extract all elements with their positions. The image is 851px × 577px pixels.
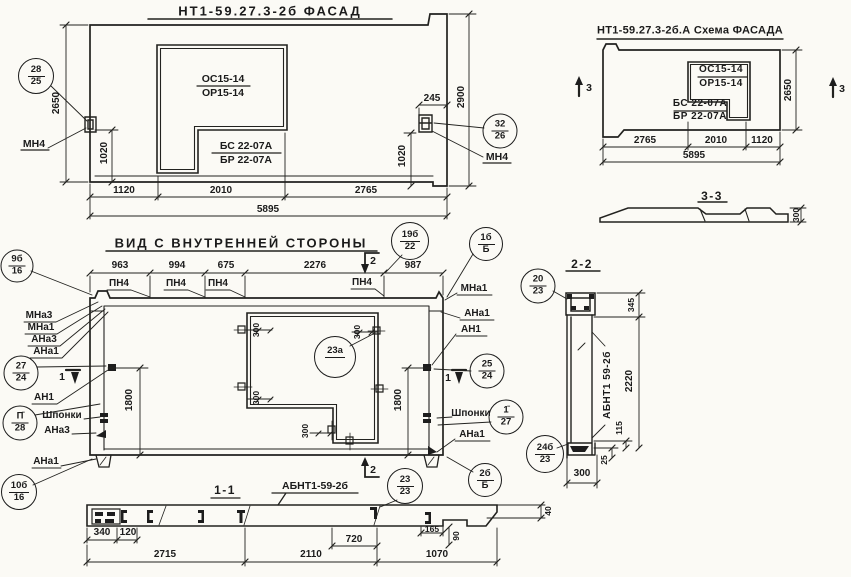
inner-label-mna3: МНа3 <box>26 311 53 321</box>
callout-den: 16 <box>12 493 27 504</box>
callout-den: Б <box>480 481 491 492</box>
section11-dim-340: 340 <box>94 528 111 538</box>
inner-callout-9b-16: 9б 16 <box>1 250 34 283</box>
inner-dim-300-tr: 300 <box>353 325 362 339</box>
inner-dim-994: 994 <box>169 261 186 271</box>
callout-num: 28 <box>28 65 45 77</box>
section33-dim-300: 300 <box>792 208 801 222</box>
schema-dim-1120: 1120 <box>751 136 773 146</box>
inner-callout-25-24: 25 24 <box>470 354 505 389</box>
inner-label-ana3-lower: АНа3 <box>44 426 70 436</box>
inner-dimension-lines <box>87 251 446 458</box>
callout-num: 23а <box>325 346 345 358</box>
inner-label-ana1-right-bot: АНа1 <box>459 430 485 440</box>
callout-den <box>333 358 337 368</box>
section22-dim-300: 300 <box>574 469 591 479</box>
callout-num: 10б <box>9 481 29 493</box>
facade-anchor-label-right: МН4 <box>486 152 508 163</box>
callout-den: 23 <box>531 287 546 298</box>
section11-dim-40: 40 <box>544 506 553 515</box>
inner-label-ana1-right-top: АНа1 <box>464 309 490 319</box>
inner-callout-p-28: П̄ 28 <box>3 406 38 441</box>
facade-dim-2900: 2900 <box>457 86 467 108</box>
inner-pn4-2: ПН4 <box>166 279 186 289</box>
inner-dim-1800-right: 1800 <box>394 389 404 411</box>
section11-dim-165: 165 <box>425 525 439 534</box>
facade-dim-1020-left: 1020 <box>100 142 110 164</box>
inner-marker-1-left: 1 <box>59 372 65 383</box>
schema-dim-2650: 2650 <box>784 79 794 101</box>
inner-title: ВИД С ВНУТРЕННЕЙ СТОРОНЫ <box>115 237 368 250</box>
facade-dim-2010: 2010 <box>210 186 232 196</box>
section11-callout-23-23: 23 23 <box>387 468 423 504</box>
inner-callout-1-27: 1̄ 27 <box>489 400 524 435</box>
inner-dim-300-tl: 300 <box>252 323 261 337</box>
inner-callout-27-24: 27 24 <box>4 356 39 391</box>
schema-panel-mark-bot: БР 22-07А <box>673 112 727 122</box>
inner-label-ana1: АНа1 <box>33 347 59 357</box>
section22-dim-115: 115 <box>615 421 624 435</box>
inner-dim-675: 675 <box>218 261 235 271</box>
schema-opening-mark-bot: ОР15-14 <box>699 79 743 89</box>
callout-num: 24б <box>535 443 555 455</box>
schema-opening-mark-top: ОС15-14 <box>699 65 743 75</box>
inner-label-an1-left: АН1 <box>34 393 54 403</box>
facade-title: НТ1-59.27.3-2б ФАСАД <box>178 5 362 18</box>
inner-panel-outline <box>90 291 443 467</box>
schema-section-marker-right: 3 <box>839 84 845 95</box>
callout-den: 16 <box>10 267 25 278</box>
inner-dim-1800-left: 1800 <box>125 389 135 411</box>
section11-dim-120: 120 <box>120 528 137 538</box>
inner-dim-2276: 2276 <box>304 261 326 271</box>
facade-dim-2650: 2650 <box>52 92 62 114</box>
schema-panel-outline <box>603 44 780 137</box>
inner-label-mna1: МНа1 <box>28 323 55 333</box>
callout-den: 27 <box>499 418 514 429</box>
callout-den: 24 <box>14 374 29 385</box>
section22-profile <box>566 293 605 458</box>
inner-marker-1-right: 1 <box>445 373 451 384</box>
inner-label-shponki-right: Шпонки <box>451 409 490 419</box>
inner-callout-1b-b: 1б Б <box>469 227 503 261</box>
callout-den: 28 <box>13 424 28 435</box>
inner-edge-details <box>96 364 437 455</box>
inner-dim-300-bot: 300 <box>301 424 310 438</box>
section11-dim-2110: 2110 <box>300 550 322 560</box>
section33-title: 3-3 <box>701 190 723 202</box>
section22-callout-top: 20 23 <box>521 269 556 304</box>
facade-callout-left: 28 25 <box>18 58 54 94</box>
section11-title: 1-1 <box>214 484 236 496</box>
facade-callout-right: 32 26 <box>483 114 518 149</box>
schema-dim-2765: 2765 <box>634 136 656 146</box>
facade-anchor-label-left: МН4 <box>23 139 45 150</box>
callout-den: 25 <box>29 77 44 88</box>
section11-dim-1070: 1070 <box>426 550 448 560</box>
schema-dim-5895: 5895 <box>683 151 705 161</box>
facade-dim-245: 245 <box>424 94 441 104</box>
section11-dim-2715: 2715 <box>154 550 176 560</box>
callout-den: 26 <box>493 132 508 143</box>
inner-marker-2-bottom: 2 <box>370 465 376 476</box>
section22-title: 2-2 <box>571 258 593 270</box>
section22-callout-bottom: 24б 23 <box>526 435 564 473</box>
section11-callout-2b-b: 2б Б <box>468 463 502 497</box>
schema-panel-mark-top: БС 22-07А <box>673 99 727 109</box>
inner-label-mna1-right: МНа1 <box>461 284 488 294</box>
inner-callout-23a: 23а <box>314 336 356 378</box>
section22-dim-2220: 2220 <box>625 370 635 392</box>
section22-dim-345: 345 <box>627 298 636 312</box>
callout-num: 2б <box>477 469 494 481</box>
callout-den: 23 <box>398 487 413 498</box>
section33-profile <box>600 202 806 225</box>
inner-callout-10b-16: 10б 16 <box>1 474 37 510</box>
callout-den: 22 <box>403 242 418 253</box>
section11-beam-label: АБНТ1-59-2б <box>282 481 348 492</box>
inner-dim-987: 987 <box>405 261 422 271</box>
facade-opening-mark-bot: ОР15-14 <box>202 88 244 99</box>
inner-pn4-1: ПН4 <box>109 279 129 289</box>
inner-label-ana1-bottom: АНа1 <box>33 457 59 467</box>
section22-beam-label: АБНТ1 59-2б <box>603 351 613 419</box>
callout-num: 1б <box>478 233 495 245</box>
callout-num: 19б <box>400 230 420 242</box>
facade-panel-mark-bot: БР 22-07А <box>220 155 272 166</box>
inner-dim-963: 963 <box>112 261 129 271</box>
callout-den: 23 <box>538 455 553 466</box>
section11-dim-720: 720 <box>346 535 363 545</box>
facade-panel-mark-top: БС 22-07А <box>220 141 272 152</box>
facade-dim-1020-right: 1020 <box>398 145 408 167</box>
facade-dim-5895: 5895 <box>257 205 279 215</box>
section22-dim-25: 25 <box>600 455 609 464</box>
blueprint-canvas: НТ1-59.27.3-2б ФАСАД ОС15-14 ОР15-14 БС … <box>0 0 851 577</box>
inner-pn4-4: ПН4 <box>352 278 372 288</box>
inner-callout-19b-22: 19б 22 <box>391 222 429 260</box>
facade-opening-mark-top: ОС15-14 <box>202 74 245 85</box>
inner-label-ana3: АНа3 <box>31 335 57 345</box>
schema-title: НТ1-59.27.3-2б.А Схема ФАСАДА <box>597 26 783 37</box>
facade-dim-2765: 2765 <box>355 186 377 196</box>
callout-den: Б <box>481 245 492 256</box>
facade-dim-1120: 1120 <box>113 186 135 196</box>
inner-label-an1-right: АН1 <box>461 325 481 335</box>
inner-pn4-3: ПН4 <box>208 279 228 289</box>
schema-dim-2010: 2010 <box>705 136 727 146</box>
callout-num: 23 <box>397 475 414 487</box>
callout-den: 24 <box>480 372 495 383</box>
inner-label-shponki-left: Шпонки <box>42 411 81 421</box>
schema-section-marker-left: 3 <box>586 83 592 94</box>
inner-dim-300-ml: 300 <box>252 391 261 405</box>
section11-dim-90: 90 <box>452 531 461 540</box>
inner-marker-2-top: 2 <box>370 256 376 267</box>
